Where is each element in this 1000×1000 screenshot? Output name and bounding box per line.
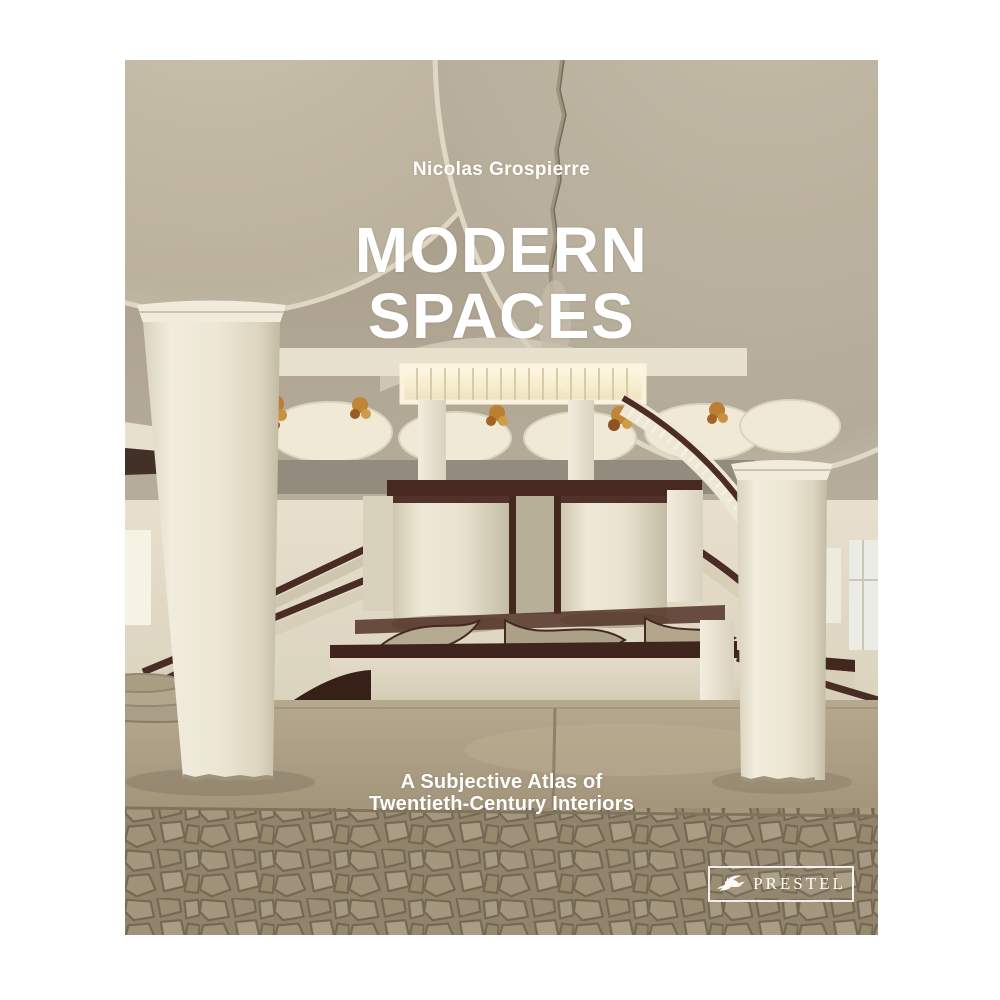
subtitle-line2: Twentieth-Century Interiors bbox=[125, 793, 878, 815]
book-title: MODERN SPACES bbox=[125, 217, 878, 349]
publisher-name: PRESTEL bbox=[753, 874, 846, 894]
book-subtitle: A Subjective Atlas of Twentieth-Century … bbox=[125, 771, 878, 815]
title-line1: MODERN bbox=[125, 217, 878, 283]
subtitle-line1: A Subjective Atlas of bbox=[125, 771, 878, 793]
pegasus-icon bbox=[716, 874, 746, 894]
author-name: Nicolas Grospierre bbox=[125, 159, 878, 181]
title-line2: SPACES bbox=[125, 283, 878, 349]
prestel-logo: PRESTEL bbox=[708, 866, 854, 902]
book-cover: Nicolas Grospierre MODERN SPACES A Subje… bbox=[125, 60, 878, 935]
page-background: Nicolas Grospierre MODERN SPACES A Subje… bbox=[0, 0, 1000, 1000]
